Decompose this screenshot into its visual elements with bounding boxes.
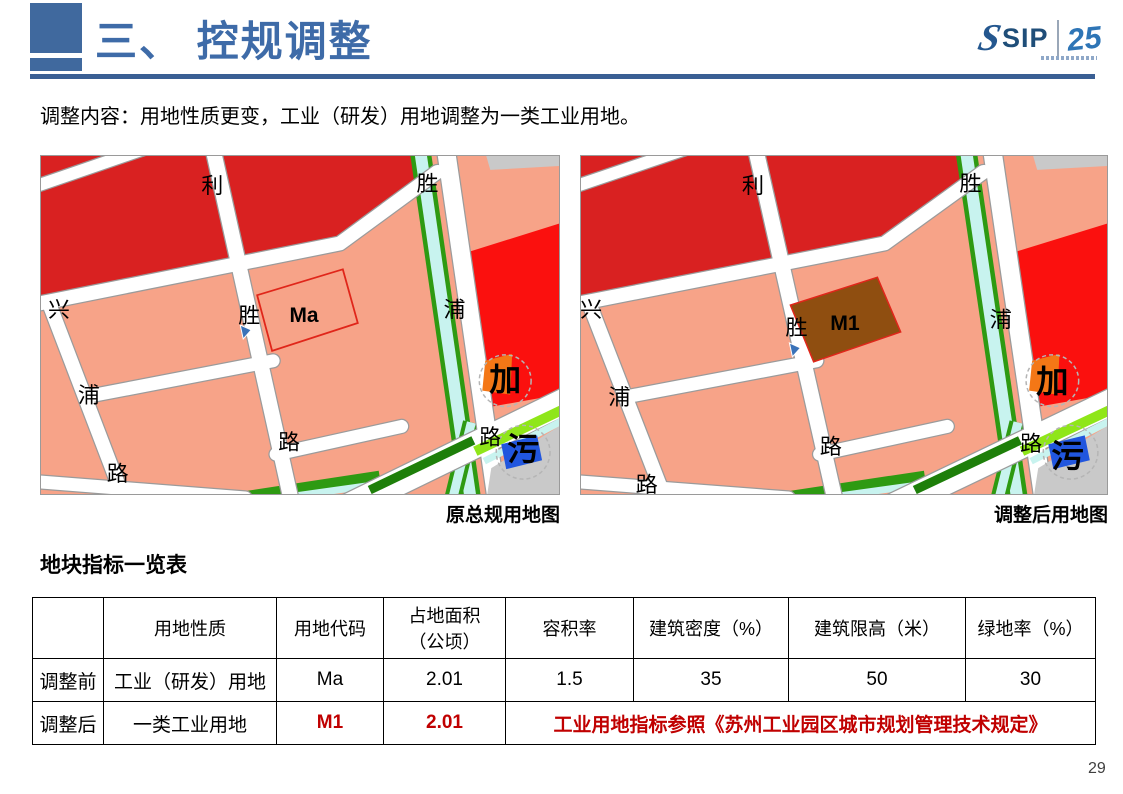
adjustment-description: 调整内容：用地性质更变，工业（研发）用地调整为一类工业用地。 (40, 100, 640, 129)
map-label: 胜 (785, 315, 807, 340)
sip-logo-text: SIP (1002, 25, 1049, 52)
map-label: 路 (820, 434, 842, 459)
cell-after-landuse: 一类工业用地 (104, 702, 277, 745)
table-title: 地块指标一览表 (40, 549, 187, 579)
cell-before-height: 50 (789, 659, 966, 702)
map-label: 污 (1051, 438, 1083, 474)
map-label: 加 (489, 362, 521, 398)
title-decoration-square (30, 3, 82, 53)
map-label: 胜 (238, 303, 260, 328)
sip-logo-swoosh-icon: S (975, 19, 1004, 57)
header-empty (33, 598, 104, 659)
cell-after-area: 2.01 (384, 702, 506, 745)
sip-logo: S SIP 25 (979, 16, 1101, 60)
cell-before-landuse: 工业（研发）用地 (104, 659, 277, 702)
map-label: 浦 (608, 385, 630, 410)
map-label: 路 (479, 424, 501, 449)
map-label: 利 (742, 173, 764, 198)
cell-before-far: 1.5 (506, 659, 634, 702)
map-label: Ma (289, 304, 318, 327)
map-label: 加 (1036, 364, 1068, 400)
map-label: M1 (830, 312, 860, 335)
cell-before-green: 30 (966, 659, 1096, 702)
land-use-map-adjusted: 利胜兴胜浦浦路路路加污M1 (580, 155, 1108, 495)
page-title: 三、 控规调整 (95, 8, 373, 69)
title-decoration-bar (30, 58, 82, 71)
land-use-map-original: 利胜兴胜浦浦路路路加污Ma (40, 155, 560, 495)
row-label-after: 调整后 (33, 702, 104, 745)
map-label: 兴 (48, 297, 70, 322)
header-green-ratio: 绿地率（%） (966, 598, 1096, 659)
logo-divider (1057, 20, 1059, 56)
table-row-after: 调整后 一类工业用地 M1 2.01 工业用地指标参照《苏州工业园区城市规划管理… (33, 702, 1096, 745)
title-rule (30, 74, 1095, 79)
cell-before-area: 2.01 (384, 659, 506, 702)
table-row-before: 调整前 工业（研发）用地 Ma 2.01 1.5 35 50 30 (33, 659, 1096, 702)
header-density: 建筑密度（%） (634, 598, 789, 659)
map-label: 污 (507, 431, 539, 467)
map-label: 路 (636, 472, 658, 494)
map-label: 路 (1020, 431, 1042, 456)
table-header-row: 用地性质 用地代码 占地面积 （公顷） 容积率 建筑密度（%） 建筑限高（米） … (33, 598, 1096, 659)
cell-before-code: Ma (277, 659, 384, 702)
cell-after-code: M1 (277, 702, 384, 745)
logo-anniversary-small-text (1041, 56, 1097, 60)
header-land-code: 用地代码 (277, 598, 384, 659)
map-label: 胜 (417, 171, 439, 196)
map-label: 利 (201, 173, 223, 198)
map-caption-original: 原总规用地图 (260, 500, 560, 527)
map-caption-adjusted: 调整后用地图 (808, 500, 1108, 527)
map-label: 浦 (990, 307, 1012, 332)
logo-anniversary-25: 25 (1065, 21, 1103, 55)
map-label: 浦 (443, 297, 465, 322)
page-number: 29 (1088, 760, 1106, 778)
map-label: 路 (278, 429, 300, 454)
map-label: 浦 (78, 383, 100, 408)
header-height-limit: 建筑限高（米） (789, 598, 966, 659)
map-label: 胜 (959, 171, 981, 196)
map-label: 路 (107, 461, 129, 486)
slide: 三、 控规调整 S SIP 25 调整内容：用地性质更变，工业（研发）用地调整为… (0, 0, 1123, 794)
header-far: 容积率 (506, 598, 634, 659)
map-label: 兴 (581, 297, 602, 322)
header-area: 占地面积 （公顷） (384, 598, 506, 659)
header-land-use: 用地性质 (104, 598, 277, 659)
row-label-before: 调整前 (33, 659, 104, 702)
cell-before-density: 35 (634, 659, 789, 702)
parcel-indicator-table: 用地性质 用地代码 占地面积 （公顷） 容积率 建筑密度（%） 建筑限高（米） … (32, 597, 1096, 745)
cell-after-note: 工业用地指标参照《苏州工业园区城市规划管理技术规定》 (506, 702, 1096, 745)
